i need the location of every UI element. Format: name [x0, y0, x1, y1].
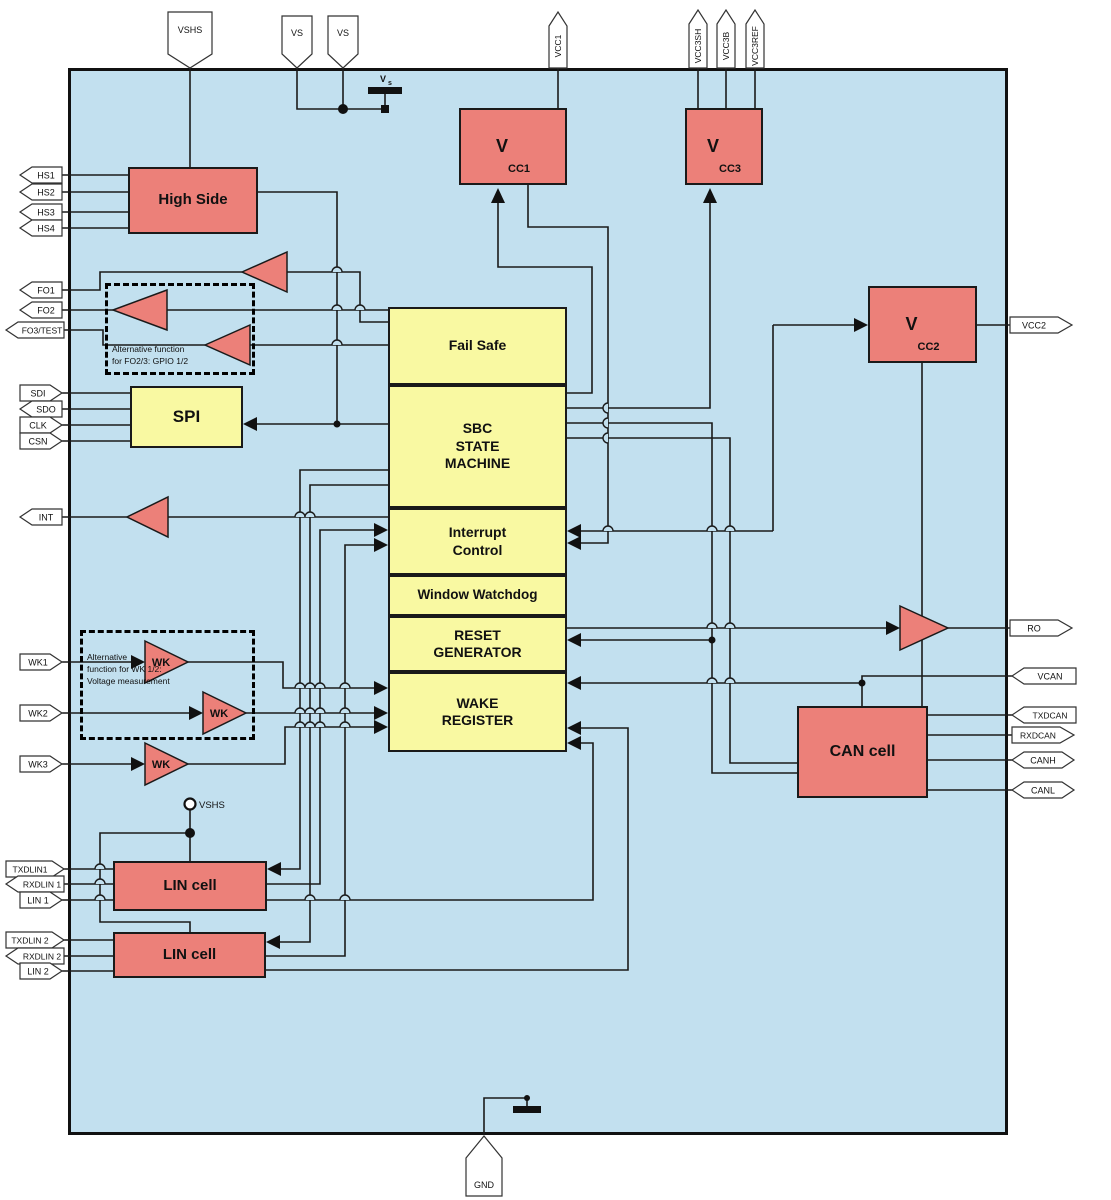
block-vcc1-sub: CC1: [508, 163, 530, 177]
pin-hs4: HS4: [37, 224, 55, 234]
pin-vcan: VCAN: [1037, 672, 1062, 682]
block-lin1-label: LIN cell: [163, 877, 216, 896]
pin-lin2: LIN 2: [27, 967, 49, 977]
pin-vs-2: VS: [337, 28, 349, 38]
block-fail-safe-label: Fail Safe: [449, 337, 507, 355]
pin-vs-1: VS: [291, 28, 303, 38]
block-interrupt-control: Interrupt Control: [388, 508, 567, 575]
pin-rxdlin1: RXDLIN 1: [23, 880, 62, 890]
block-vcc3-label: V: [707, 135, 719, 158]
gnd-wires: [484, 1098, 541, 1135]
pin-fo2: FO2: [37, 306, 55, 316]
block-vcc3: VCC3: [685, 108, 763, 185]
sbc-block-diagram: WK WK WK HS1 HS2 HS3 HS4 FO1 FO2 FO3/TES…: [0, 0, 1111, 1200]
wk3-label: WK: [152, 759, 170, 771]
int-buffer-icon: [127, 497, 168, 537]
block-interrupt-label: Interrupt Control: [449, 524, 507, 559]
pin-txdcan: TXDCAN: [1033, 711, 1068, 721]
wk-alt-function-note: Alternative function for WK 1/2: Voltage…: [87, 652, 170, 688]
block-lin-cell-1: LIN cell: [113, 861, 267, 911]
pin-gnd: GND: [474, 1180, 495, 1190]
pin-canl: CANL: [1031, 786, 1055, 796]
ro-buffer-icon: [900, 606, 948, 650]
pin-ro: RO: [1027, 624, 1041, 634]
block-vcc2-label: V: [905, 313, 917, 336]
block-lin-cell-2: LIN cell: [113, 932, 266, 978]
vs-supply-sub: s: [388, 80, 392, 87]
pin-vshs: VSHS: [178, 25, 203, 35]
block-lin2-label: LIN cell: [163, 946, 216, 965]
pin-hs3: HS3: [37, 208, 55, 218]
block-high-side: High Side: [128, 167, 258, 234]
block-watchdog-label: Window Watchdog: [417, 587, 537, 604]
pin-txdlin1: TXDLIN1: [13, 865, 48, 875]
block-wake-label: WAKE REGISTER: [442, 695, 514, 730]
lin-pin-wires: [62, 869, 113, 971]
block-can-cell: CAN cell: [797, 706, 928, 798]
block-can-label: CAN cell: [830, 742, 896, 762]
block-reset-label: RESET GENERATOR: [433, 627, 521, 662]
pin-rxdlin2: RXDLIN 2: [23, 952, 62, 962]
top-pin-tags: VSHS VS VS VCC1 VCC3SH VCC3B VCC3REF: [168, 10, 764, 68]
block-vcc3-sub: CC3: [719, 163, 741, 177]
pin-vcc3ref: VCC3REF: [750, 26, 760, 66]
right-pin-tags: VCC2 RO VCAN TXDCAN RXDCAN CANH CANL: [1010, 317, 1076, 798]
block-vcc2: VCC2: [868, 286, 977, 363]
pin-clk: CLK: [29, 421, 47, 431]
pin-csn: CSN: [28, 437, 47, 447]
vshs-node-icon: [185, 799, 196, 810]
block-spi: SPI: [130, 386, 243, 448]
fo-alt-function-note: Alternative function for FO2/3: GPIO 1/2: [112, 344, 188, 368]
left-pin-tags: HS1 HS2 HS3 HS4 FO1 FO2 FO3/TEST SDI SDO…: [6, 167, 64, 979]
pin-vcc2: VCC2: [1022, 321, 1046, 331]
pin-wk2: WK2: [28, 709, 48, 719]
pin-canh: CANH: [1030, 756, 1056, 766]
block-high-side-label: High Side: [158, 191, 227, 210]
block-spi-label: SPI: [173, 406, 200, 427]
block-window-watchdog: Window Watchdog: [388, 575, 567, 616]
can-wires: [567, 423, 1012, 790]
pin-vcc3b: VCC3B: [721, 31, 731, 60]
pin-wk3: WK3: [28, 760, 48, 770]
block-vcc1: VCC1: [459, 108, 567, 185]
bottom-pin-tags: GND: [466, 1136, 502, 1196]
block-vcc1-label: V: [496, 135, 508, 158]
block-vcc2-sub: CC2: [918, 341, 940, 355]
pin-int: INT: [39, 513, 54, 523]
block-reset-generator: RESET GENERATOR: [388, 616, 567, 672]
pin-sdo: SDO: [36, 405, 56, 415]
pin-sdi: SDI: [30, 389, 45, 399]
pin-lin1: LIN 1: [27, 896, 49, 906]
block-wake-register: WAKE REGISTER: [388, 672, 567, 752]
pin-txdlin2: TXDLIN 2: [11, 936, 49, 946]
vs-supply-label: V: [380, 74, 386, 84]
pin-fo1: FO1: [37, 286, 55, 296]
pin-rxdcan: RXDCAN: [1020, 731, 1056, 741]
block-fail-safe: Fail Safe: [388, 307, 567, 385]
pin-hs1: HS1: [37, 171, 55, 181]
pin-vcc3sh: VCC3SH: [693, 29, 703, 63]
pin-vcc1-top: VCC1: [553, 34, 563, 57]
pin-wk1: WK1: [28, 658, 48, 668]
block-sbc-label: SBC STATE MACHINE: [445, 420, 510, 473]
pin-hs2: HS2: [37, 188, 55, 198]
vshs-node-label: VSHS: [199, 800, 225, 811]
block-sbc-state-machine: SBC STATE MACHINE: [388, 385, 567, 508]
pin-fo3-test: FO3/TEST: [22, 326, 63, 336]
